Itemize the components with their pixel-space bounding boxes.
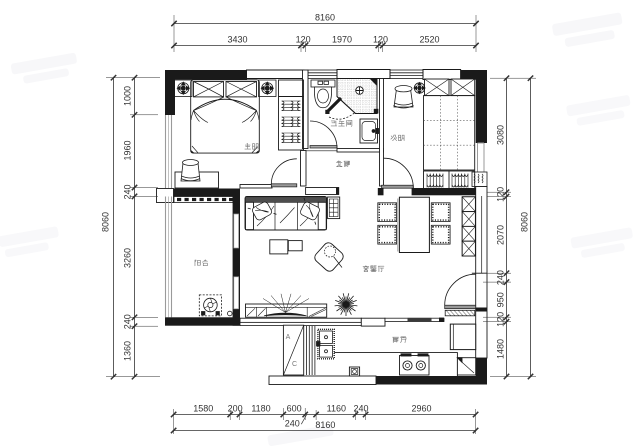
svg-text:1160: 1160 [327, 404, 346, 414]
svg-text:240: 240 [123, 314, 133, 329]
svg-text:200: 200 [228, 404, 243, 414]
svg-text:120: 120 [373, 35, 388, 45]
svg-text:8060: 8060 [101, 212, 111, 232]
svg-text:1000: 1000 [123, 86, 133, 106]
svg-text:1970: 1970 [332, 35, 352, 45]
svg-text:A: A [286, 334, 291, 341]
svg-text:1180: 1180 [251, 404, 270, 414]
svg-text:600: 600 [287, 404, 302, 414]
svg-text:8060: 8060 [520, 212, 530, 232]
svg-text:1480: 1480 [495, 339, 505, 359]
svg-text:240: 240 [495, 270, 505, 285]
svg-text:1580: 1580 [193, 404, 213, 414]
svg-text:C: C [292, 361, 297, 368]
svg-text:950: 950 [495, 292, 505, 307]
svg-text:3080: 3080 [495, 125, 505, 145]
svg-text:120: 120 [296, 35, 311, 45]
svg-text:240: 240 [353, 404, 368, 414]
svg-text:8160: 8160 [315, 420, 335, 430]
svg-text:2960: 2960 [411, 404, 431, 414]
svg-text:240: 240 [123, 184, 133, 199]
svg-text:1360: 1360 [123, 341, 133, 361]
svg-text:120: 120 [495, 312, 505, 327]
svg-text:2070: 2070 [495, 225, 505, 245]
svg-text:120: 120 [495, 187, 505, 202]
svg-text:1960: 1960 [123, 140, 133, 160]
svg-text:8160: 8160 [315, 13, 335, 23]
svg-text:240: 240 [285, 419, 300, 429]
svg-text:2520: 2520 [419, 35, 439, 45]
svg-text:3260: 3260 [123, 248, 133, 268]
svg-text:3430: 3430 [227, 35, 247, 45]
